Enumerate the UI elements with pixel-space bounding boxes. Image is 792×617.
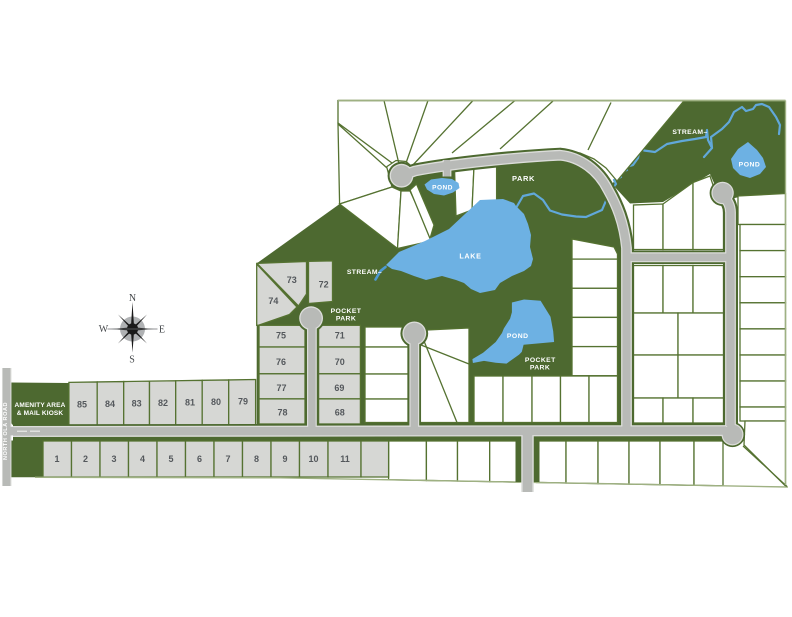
svg-text:8: 8	[254, 454, 259, 464]
svg-text:PARK: PARK	[530, 364, 550, 371]
svg-text:LAKE: LAKE	[459, 252, 481, 261]
svg-text:9: 9	[282, 454, 287, 464]
svg-text:PARK: PARK	[336, 316, 356, 323]
svg-text:77: 77	[276, 383, 286, 393]
svg-text:84: 84	[105, 399, 115, 409]
svg-text:71: 71	[335, 331, 345, 341]
svg-text:68: 68	[335, 408, 345, 418]
svg-text:81: 81	[185, 398, 195, 408]
svg-text:& MAIL KIOSK: & MAIL KIOSK	[17, 410, 64, 417]
svg-text:70: 70	[335, 357, 345, 367]
svg-text:AMENITY AREA: AMENITY AREA	[15, 402, 66, 409]
svg-text:69: 69	[334, 383, 344, 393]
svg-text:PARK: PARK	[512, 174, 535, 183]
svg-text:NORTH OLA ROAD: NORTH OLA ROAD	[3, 402, 9, 460]
svg-text:83: 83	[132, 399, 142, 409]
svg-text:4: 4	[140, 454, 145, 464]
svg-text:85: 85	[77, 400, 87, 410]
svg-text:W: W	[99, 324, 109, 335]
svg-text:STREAM–: STREAM–	[672, 129, 707, 136]
svg-text:E: E	[159, 324, 165, 335]
svg-text:5: 5	[168, 454, 173, 464]
svg-text:N: N	[129, 293, 136, 304]
svg-text:S: S	[129, 355, 135, 366]
svg-text:74: 74	[268, 296, 278, 306]
svg-text:STREAM–: STREAM–	[347, 269, 382, 276]
svg-text:72: 72	[319, 280, 329, 290]
svg-text:82: 82	[158, 398, 168, 408]
svg-text:POND: POND	[432, 185, 453, 192]
svg-text:76: 76	[276, 357, 286, 367]
svg-text:80: 80	[211, 397, 221, 407]
svg-text:10: 10	[308, 454, 318, 464]
svg-text:1: 1	[54, 454, 59, 464]
svg-text:POCKET: POCKET	[525, 357, 556, 364]
svg-text:75: 75	[276, 331, 286, 341]
svg-text:3: 3	[111, 454, 116, 464]
svg-text:78: 78	[277, 408, 287, 418]
svg-text:POND: POND	[739, 162, 761, 169]
svg-text:POND: POND	[507, 333, 529, 340]
svg-text:2: 2	[83, 454, 88, 464]
svg-text:6: 6	[197, 454, 202, 464]
svg-text:POCKET: POCKET	[331, 308, 362, 315]
svg-text:79: 79	[238, 397, 248, 407]
svg-text:73: 73	[287, 275, 297, 285]
svg-text:11: 11	[340, 454, 350, 464]
svg-text:7: 7	[225, 454, 230, 464]
